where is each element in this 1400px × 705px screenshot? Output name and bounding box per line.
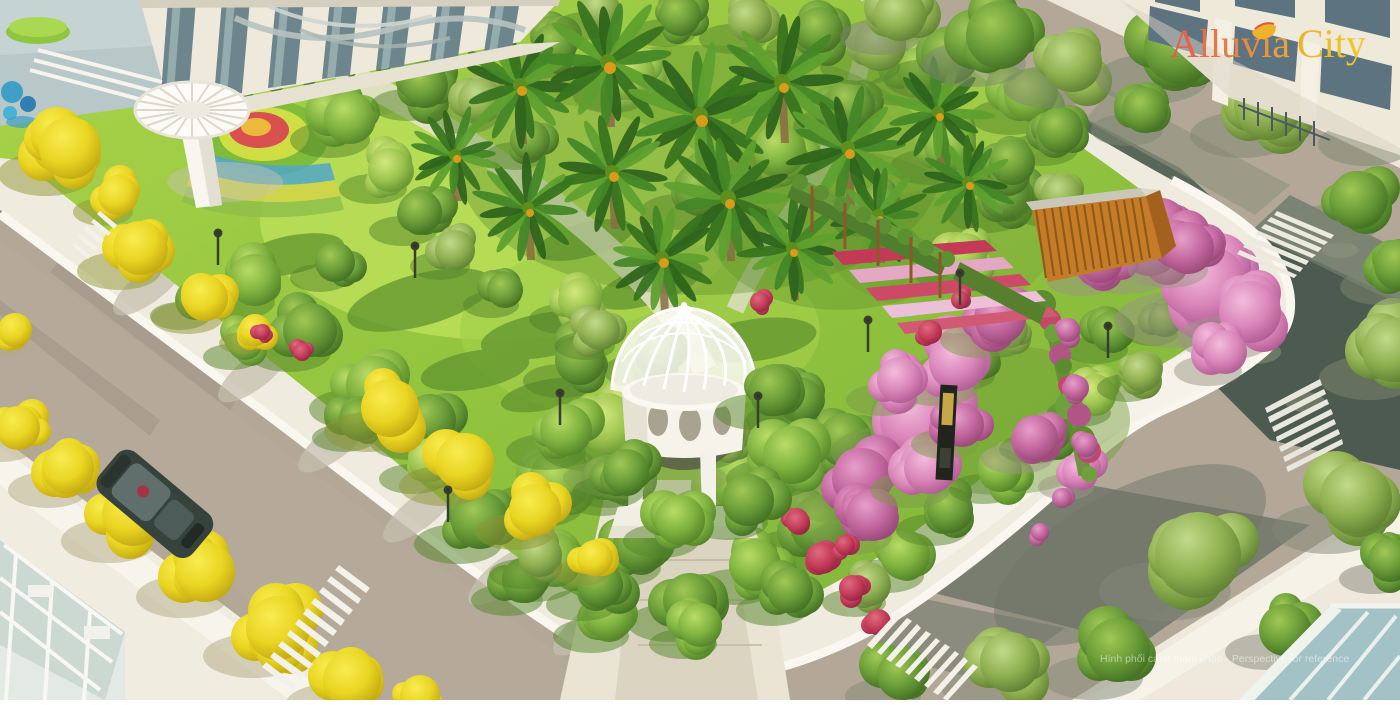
svg-text:Hình phối cảnh tham khảo - Per: Hình phối cảnh tham khảo - Perspective f… xyxy=(1100,653,1349,665)
svg-text:City: City xyxy=(1297,21,1366,66)
